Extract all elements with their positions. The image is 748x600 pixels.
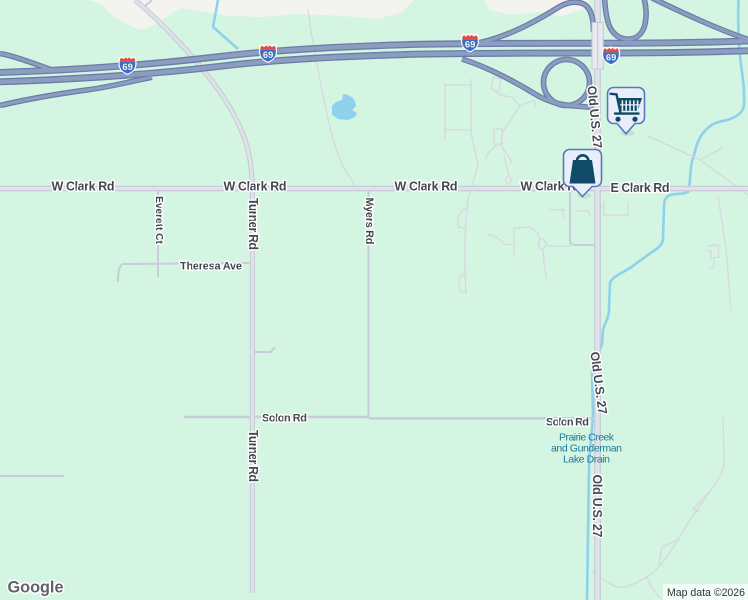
svg-text:Lake Drain: Lake Drain <box>563 453 610 465</box>
svg-text:Google: Google <box>8 578 64 597</box>
svg-text:W Clark Rd: W Clark Rd <box>224 180 287 194</box>
svg-text:E Clark Rd: E Clark Rd <box>611 181 670 195</box>
svg-text:Theresa Ave: Theresa Ave <box>180 261 242 273</box>
svg-text:Map data ©2026: Map data ©2026 <box>667 587 745 599</box>
svg-text:Turner Rd: Turner Rd <box>246 198 260 250</box>
svg-text:Everett Ct: Everett Ct <box>153 196 165 245</box>
svg-text:Solon Rd: Solon Rd <box>262 413 307 425</box>
svg-text:Turner Rd: Turner Rd <box>246 430 260 482</box>
svg-text:W Clark Rd: W Clark Rd <box>395 180 458 194</box>
svg-text:Old U.S. 27: Old U.S. 27 <box>590 475 604 538</box>
svg-text:69: 69 <box>122 61 132 72</box>
svg-text:Myers Rd: Myers Rd <box>363 198 375 245</box>
svg-text:Solon Rd: Solon Rd <box>546 417 589 429</box>
svg-text:W Clark Rd: W Clark Rd <box>52 180 115 194</box>
